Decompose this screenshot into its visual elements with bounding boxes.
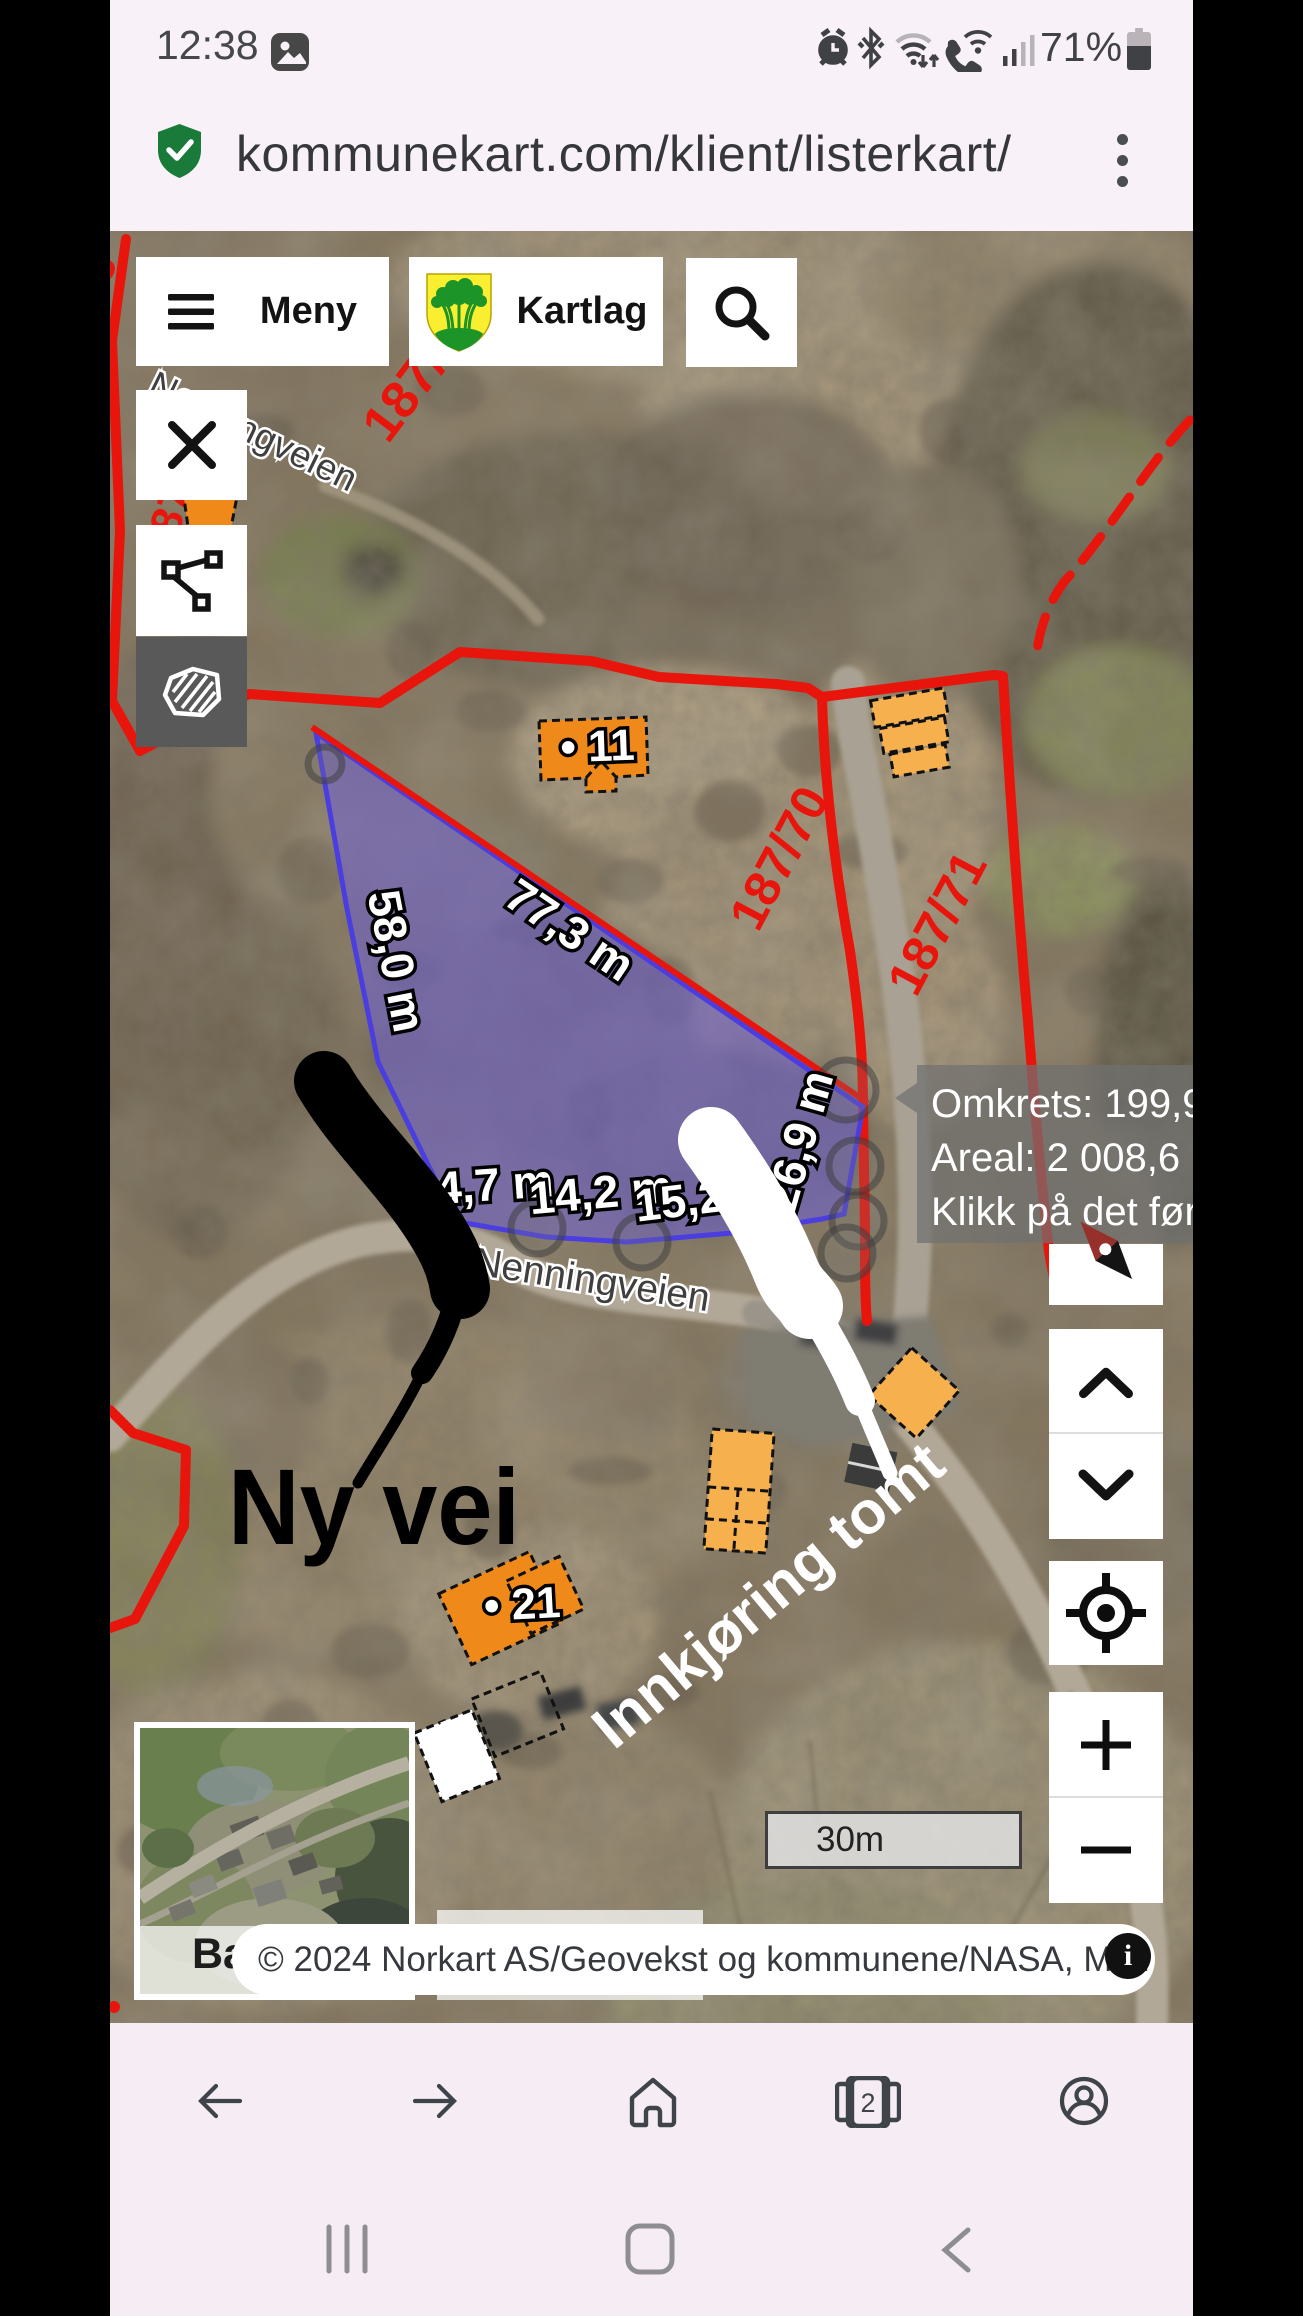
svg-text:2: 2	[860, 2088, 875, 2118]
svg-text:Nenningveien: Nenningveien	[471, 1240, 713, 1320]
svg-text:• 11: • 11	[560, 721, 636, 773]
svg-text:Ny vei: Ny vei	[228, 1446, 520, 1567]
svg-text:• 21: • 21	[483, 1578, 562, 1631]
svg-text:187/71: 187/71	[876, 842, 997, 1003]
svg-text:187/70: 187/70	[718, 777, 839, 938]
